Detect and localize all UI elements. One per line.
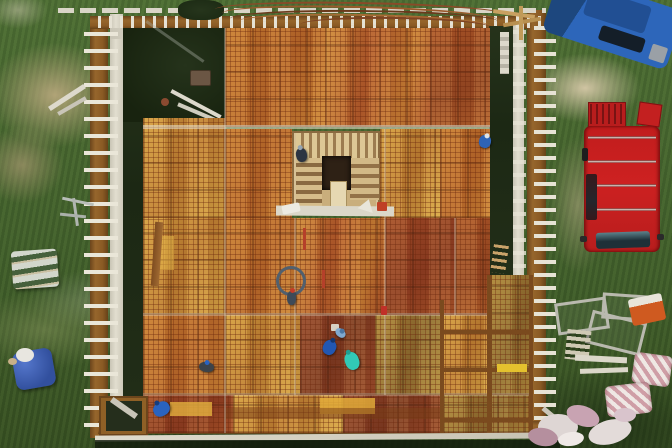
- worker-teal: [342, 350, 361, 372]
- debris-blob: [614, 408, 636, 422]
- worker-blue-kneeling-detail: [329, 337, 336, 344]
- corner-ladder: [500, 32, 509, 74]
- red-van: [582, 100, 664, 268]
- red-van-rack-bar: [588, 184, 656, 187]
- worker-right-edge: [478, 134, 493, 150]
- red-van-mirror-left: [580, 236, 587, 242]
- pallet-of-sacks: [11, 248, 60, 289]
- blue-van-bumper: [648, 43, 668, 63]
- workers-layer: [0, 0, 672, 448]
- worker-at-stairwell-detail: [298, 145, 304, 151]
- corner-timber: [519, 6, 523, 40]
- worker-with-hose-detail: [290, 288, 295, 293]
- red-van-rack-bar: [588, 160, 656, 163]
- red-van-rack-rungs: [590, 104, 622, 124]
- tarp-white-bag: [16, 348, 34, 362]
- worker-teal-detail: [345, 349, 351, 355]
- red-van-rack-flap: [637, 102, 663, 128]
- red-van-windshield: [596, 231, 651, 249]
- worker-light-blue: [334, 326, 348, 339]
- red-van-body: [584, 126, 660, 252]
- red-van-rack-bar: [588, 136, 656, 139]
- worker-with-hose: [287, 291, 296, 305]
- aerial-construction-photo: [0, 0, 672, 448]
- debris-pile: [528, 404, 648, 448]
- worker-bent-dark: [198, 361, 214, 373]
- worker-blue-kneeling: [320, 338, 338, 357]
- small-sack: [8, 358, 17, 365]
- red-van-mirror-right: [657, 234, 664, 240]
- worker-right-edge-detail: [484, 132, 490, 138]
- worker-bottom-blue-detail: [154, 400, 161, 407]
- worker-light-blue-detail: [339, 327, 346, 334]
- red-van-rack-bar: [588, 208, 656, 211]
- red-van-wheel: [582, 148, 588, 161]
- dark-pit: [178, 0, 224, 20]
- bottom-shadow: [95, 440, 560, 448]
- worker-bent-dark-detail: [204, 360, 210, 366]
- worker-bottom-blue: [151, 399, 173, 420]
- red-van-side-windows: [586, 174, 597, 220]
- worker-at-stairwell: [295, 147, 308, 163]
